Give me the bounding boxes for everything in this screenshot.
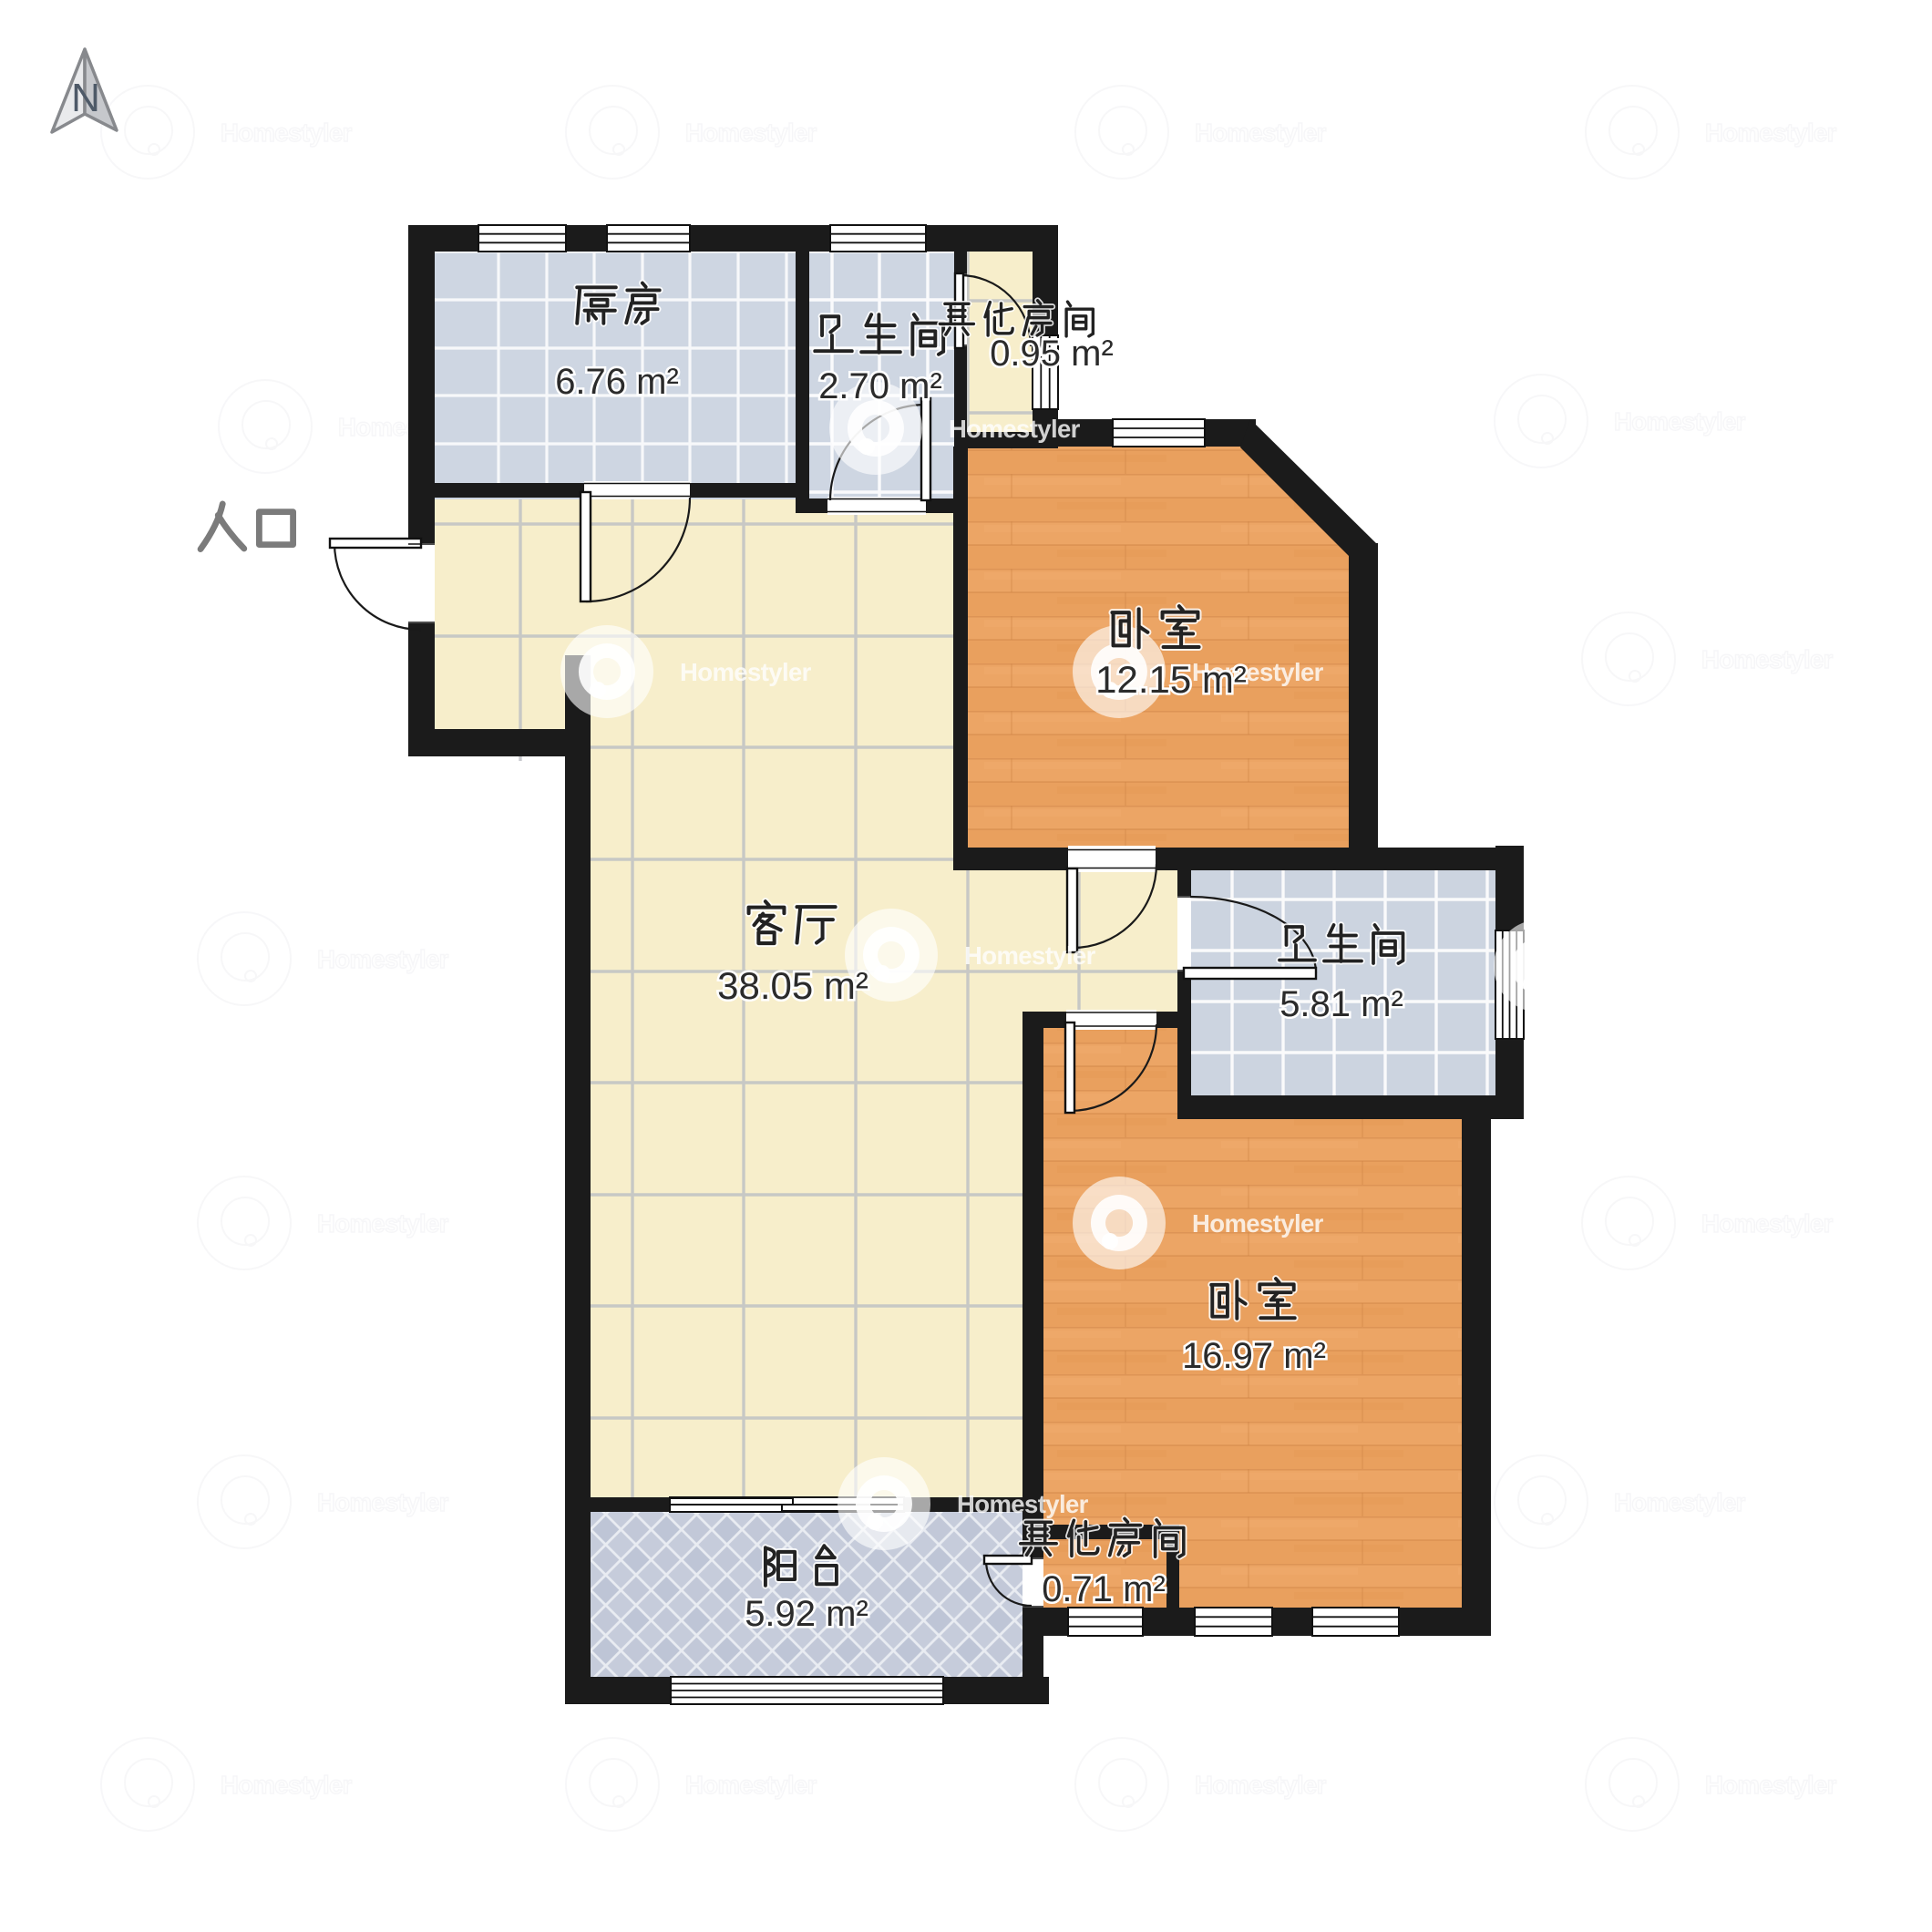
svg-text:Homestyler: Homestyler [957, 1490, 1089, 1518]
svg-text:N: N [71, 76, 100, 120]
svg-text:Homestyler: Homestyler [317, 1488, 449, 1516]
svg-text:Homestyler: Homestyler [680, 658, 812, 686]
svg-text:Homestyler: Homestyler [685, 118, 817, 147]
svg-text:Homestyler: Homestyler [1195, 1771, 1327, 1799]
svg-text:Homestyler: Homestyler [1705, 118, 1837, 147]
svg-text:Homestyler: Homestyler [317, 945, 449, 973]
svg-text:Homestyler: Homestyler [1701, 1209, 1834, 1238]
svg-text:Homestyler: Homestyler [221, 118, 353, 147]
svg-text:Homestyler: Homestyler [1614, 1488, 1746, 1516]
svg-text:0.95 m²: 0.95 m² [990, 334, 1114, 374]
svg-text:Homestyler: Homestyler [1192, 1209, 1324, 1238]
svg-text:2.70 m²: 2.70 m² [818, 366, 942, 406]
svg-text:Homestyler: Homestyler [1705, 1771, 1837, 1799]
svg-text:Homestyler: Homestyler [1701, 645, 1834, 673]
svg-text:Homestyler: Homestyler [317, 1209, 449, 1238]
svg-text:Homestyler: Homestyler [221, 1771, 353, 1799]
svg-text:6.76 m²: 6.76 m² [555, 362, 679, 402]
svg-text:Homestyler: Homestyler [1195, 118, 1327, 147]
svg-text:5.92 m²: 5.92 m² [745, 1594, 868, 1634]
svg-text:12.15 m²: 12.15 m² [1095, 658, 1247, 701]
svg-text:16.97 m²: 16.97 m² [1182, 1336, 1326, 1376]
svg-text:0.71 m²: 0.71 m² [1042, 1569, 1166, 1609]
svg-text:Homestyler: Homestyler [964, 941, 1096, 970]
svg-text:Homestyler: Homestyler [949, 415, 1081, 443]
svg-text:5.81 m²: 5.81 m² [1279, 984, 1403, 1024]
svg-text:38.05 m²: 38.05 m² [717, 964, 868, 1007]
svg-text:Homestyler: Homestyler [1614, 407, 1746, 436]
svg-text:Homestyler: Homestyler [685, 1771, 817, 1799]
